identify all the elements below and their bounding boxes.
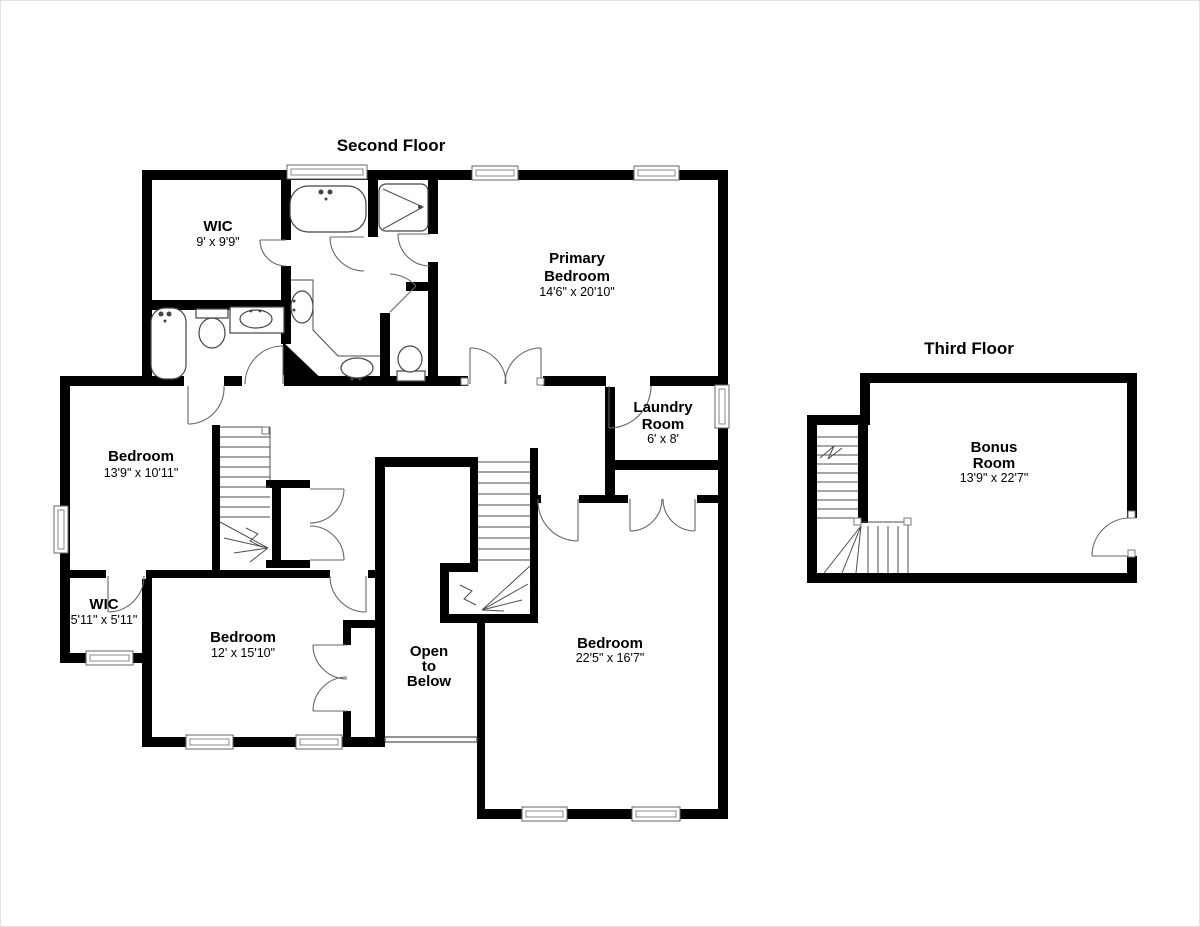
room-label-bedroom-right: Bedroom 22'5" x 16'7" [576,635,645,665]
wall [272,480,281,568]
jambs-second-floor [461,378,544,385]
wall [1127,373,1137,518]
toilet-icon [196,309,228,348]
double-door-swing [505,348,541,384]
room-dims: 5'11" x 5'11" [71,613,138,627]
window [54,506,68,553]
walls-second-floor [60,170,728,819]
stair-treads [220,427,270,517]
room-dims: 22'5" x 16'7" [576,651,645,665]
door-swing [398,234,430,266]
window [186,735,233,749]
wall [477,809,728,819]
closet-door-swing [310,489,344,523]
room-label-bedroom-middle: Bedroom 12' x 15'10" [210,629,276,660]
room-labels-third-floor: Bonus Room 13'9" x 22'7" [960,439,1029,485]
closet-door-swing [310,526,344,560]
wall [406,282,434,291]
windows-second-floor [54,165,729,821]
wall [428,262,438,386]
window [86,651,133,665]
room-name: Room [642,416,685,433]
room-label-laundry-room: Laundry Room 6' x 8' [633,399,693,446]
wall [440,614,538,623]
bathtub-icon [290,186,366,232]
shower-icon [379,184,428,231]
room-name: Bedroom [577,635,643,652]
door-opening [606,375,650,387]
room-name: Room [973,455,1016,472]
wall [142,570,152,747]
room-label-bonus-room: Bonus Room 13'9" x 22'7" [960,439,1029,485]
window [634,166,679,180]
window [522,807,567,821]
wall [343,711,351,745]
door-swing [1092,518,1130,556]
wall [858,425,868,523]
floor-plan-image: Second Floor [0,0,1200,927]
stair-winder [220,522,268,562]
room-dims: 13'9" x 22'7" [960,471,1029,485]
jamb [461,378,468,385]
wall [807,573,1137,583]
jamb [904,518,911,525]
wall [807,415,817,583]
stair-winder [482,566,530,611]
vanity-sink-icon [230,307,284,333]
door-swing [188,386,224,424]
window [296,735,342,749]
wall [470,457,478,565]
room-label-bedroom-left: Bedroom 13'9" x 10'11" [104,448,179,480]
room-dims: 6' x 8' [647,432,679,446]
door-opening [184,375,224,387]
double-door-swing [470,348,506,384]
wall [605,460,728,470]
room-label-primary-bedroom: Primary Bedroom 14'6" x 20'10" [539,250,615,299]
room-name: Primary [549,250,606,267]
second-floor-plan: Second Floor [54,136,729,821]
closet-door-swing [313,645,347,679]
room-name: Bedroom [210,629,276,646]
stair-winder [824,526,861,573]
jamb [1128,550,1135,557]
wall [718,170,728,819]
door-opening [330,569,368,579]
railing [385,737,477,742]
stair-break-line [820,446,842,459]
door-swing [260,240,286,266]
room-name: Bedroom [108,448,174,465]
room-dims: 9' x 9'9" [196,235,239,249]
window [287,165,367,179]
door-swing [330,576,366,612]
jamb [537,378,544,385]
jamb [1128,511,1135,518]
room-name: Laundry [633,399,693,416]
jamb [854,518,861,525]
wall [477,614,485,819]
window [715,385,729,428]
stair-winder-treads [858,522,908,573]
stair-treads [817,437,858,518]
wall [860,373,1137,383]
wall [368,180,378,237]
room-name: WIC [89,596,118,613]
stair-break-line [460,585,476,605]
room-label-wic-upper: WIC 9' x 9'9" [196,218,239,249]
stair-treads [478,462,530,560]
wall [375,457,385,747]
door-opening [106,569,146,579]
wall [375,457,478,467]
sink-icon [291,291,313,323]
room-dims: 13'9" x 10'11" [104,466,179,480]
room-name: Bonus [971,439,1018,456]
door-swing [390,274,416,312]
jamb [262,427,269,434]
page-border [1,1,1200,927]
third-floor-plan: Third Floor Bonus R [807,339,1137,583]
wall [605,385,615,497]
wall [212,425,220,570]
room-label-wic-lower: WIC 5'11" x 5'11" [71,596,138,627]
room-label-open-to-below: Open to Below [407,643,452,690]
bathtub-icon [151,308,186,379]
room-name: Bedroom [544,268,610,285]
open-to-below-railing [385,737,477,742]
door-opening [242,375,284,387]
door-opening [541,494,579,504]
floor-title: Third Floor [924,339,1014,358]
wall [380,313,390,386]
room-dims: 14'6" x 20'10" [539,285,615,299]
floor-plan-page: Second Floor [0,0,1200,927]
room-name: WIC [203,218,232,235]
toilet-icon [397,346,425,381]
door-swing [538,499,578,541]
stairs-down [220,427,270,562]
doors-third-floor [1092,511,1135,557]
window [632,807,680,821]
closet-door-swing [313,677,347,711]
room-name: Below [407,673,452,690]
wall [428,180,438,234]
wall [343,620,351,645]
floor-title: Second Floor [337,136,446,155]
room-dims: 12' x 15'10" [211,646,275,660]
window [472,166,518,180]
wall [266,560,310,568]
wall [530,448,538,623]
door-swing [330,237,364,271]
